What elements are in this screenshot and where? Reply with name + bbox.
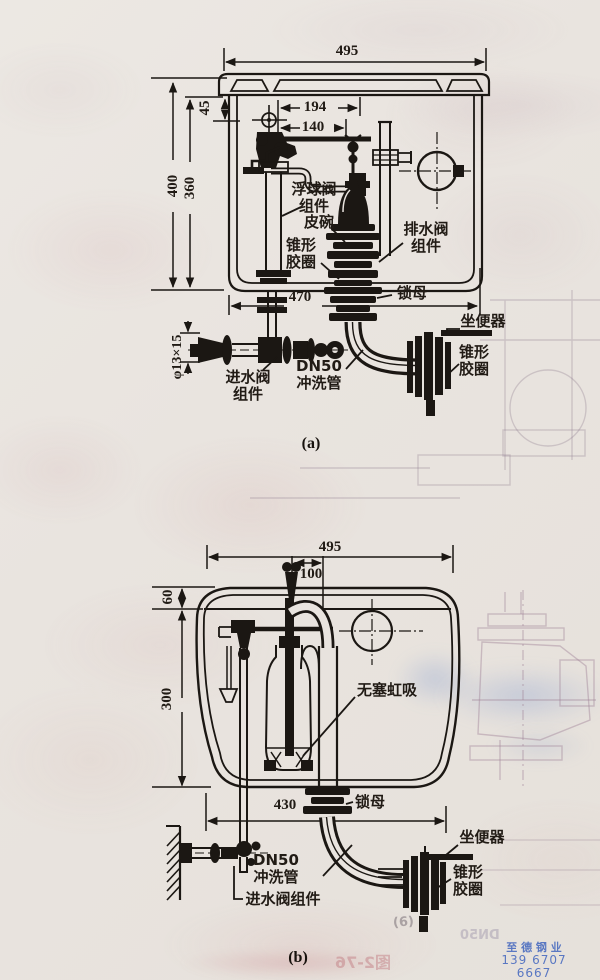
wall-and-supply-b xyxy=(166,826,268,900)
diagram-linework xyxy=(0,0,600,980)
inlet-valve-assembly-a xyxy=(188,291,348,365)
ghost-sketch-right-of-b xyxy=(470,590,600,905)
flush-pipe-elbow-b xyxy=(327,817,405,881)
tank-b xyxy=(197,562,460,787)
float-ball-a xyxy=(399,132,471,212)
diagram-a-dimensions xyxy=(151,48,486,374)
toilet-connector-b xyxy=(378,846,473,932)
scanned-page: 495 400 360 45 194 140 470 φ13×15 浮球阀 组件… xyxy=(0,0,600,980)
